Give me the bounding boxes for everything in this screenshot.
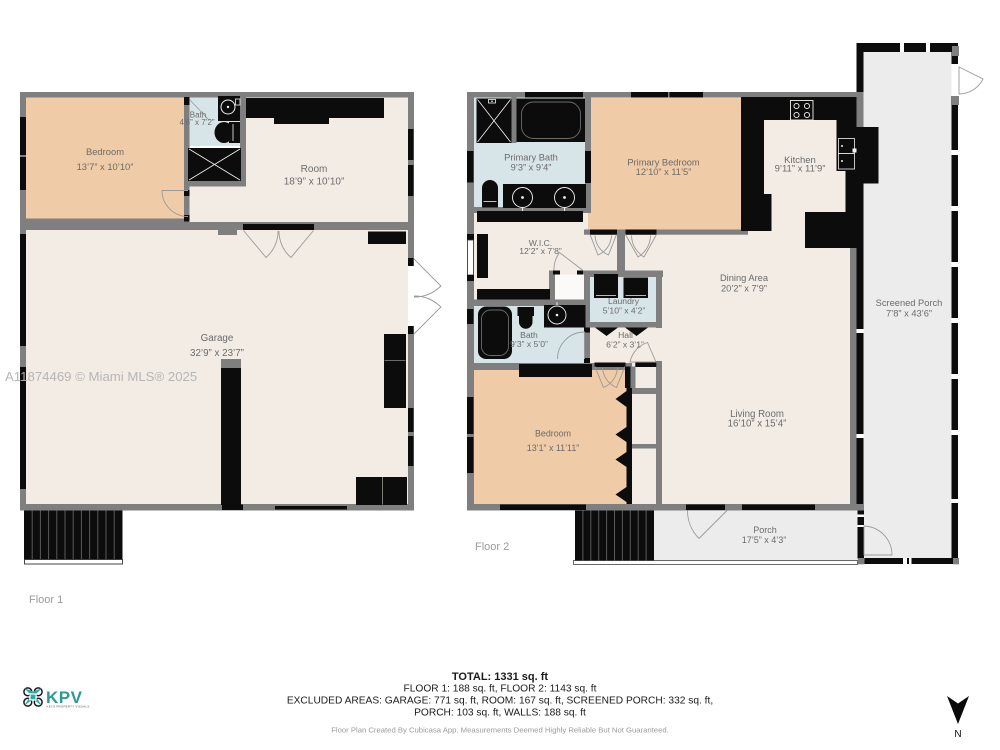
svg-text:9’3” x 9’4”: 9’3” x 9’4” bbox=[511, 163, 552, 173]
svg-text:Bedroom: Bedroom bbox=[535, 429, 571, 439]
svg-text:Floor Plan Created By Cubicasa: Floor Plan Created By Cubicasa App. Meas… bbox=[331, 726, 669, 735]
svg-text:13’1” x 11’11”: 13’1” x 11’11” bbox=[527, 443, 579, 453]
svg-text:Primary Bedroom: Primary Bedroom bbox=[627, 158, 700, 168]
svg-text:Primary Bath: Primary Bath bbox=[504, 153, 558, 163]
svg-text:20’2” x 7’9”: 20’2” x 7’9” bbox=[721, 284, 767, 294]
svg-text:A11874469 © Miami MLS® 2025: A11874469 © Miami MLS® 2025 bbox=[5, 369, 197, 384]
svg-text:7’8” x 43’6”: 7’8” x 43’6” bbox=[886, 309, 932, 319]
svg-text:17’5” x 4’3”: 17’5” x 4’3” bbox=[742, 535, 787, 545]
svg-text:Garage: Garage bbox=[201, 333, 234, 344]
svg-text:EXCLUDED AREAS: GARAGE: 771 sq: EXCLUDED AREAS: GARAGE: 771 sq. ft, ROOM… bbox=[287, 696, 713, 707]
svg-text:18’9” x 10’10”: 18’9” x 10’10” bbox=[284, 177, 345, 188]
svg-text:Floor 1: Floor 1 bbox=[29, 594, 63, 606]
svg-text:KEYS PROPERTY VISUALS: KEYS PROPERTY VISUALS bbox=[47, 705, 90, 709]
svg-text:12’2” x 7’8”: 12’2” x 7’8” bbox=[519, 246, 562, 256]
svg-text:Laundry: Laundry bbox=[608, 296, 640, 306]
svg-text:Dining Area: Dining Area bbox=[720, 273, 769, 283]
svg-text:32’9” x 23’7”: 32’9” x 23’7” bbox=[190, 348, 244, 359]
svg-text:6’2” x 3’1”: 6’2” x 3’1” bbox=[606, 340, 644, 350]
svg-text:9’11” x 11’9”: 9’11” x 11’9” bbox=[775, 164, 826, 175]
svg-text:4’6” x 7’2”: 4’6” x 7’2” bbox=[179, 118, 214, 127]
svg-text:N: N bbox=[954, 729, 961, 740]
svg-text:Room: Room bbox=[301, 164, 328, 175]
svg-text:13’7” x 10’10”: 13’7” x 10’10” bbox=[77, 161, 134, 172]
svg-text:Porch: Porch bbox=[753, 525, 777, 535]
svg-text:9’3” x 5’0”: 9’3” x 5’0” bbox=[510, 339, 548, 349]
svg-text:TOTAL: 1331 sq. ft: TOTAL: 1331 sq. ft bbox=[452, 671, 549, 683]
svg-text:16’10” x 15’4”: 16’10” x 15’4” bbox=[728, 419, 787, 430]
svg-text:FLOOR 1: 188 sq. ft, FLOOR 2:: FLOOR 1: 188 sq. ft, FLOOR 2: 1143 sq. f… bbox=[404, 684, 597, 695]
svg-text:5’10” x 4’2”: 5’10” x 4’2” bbox=[603, 306, 646, 316]
svg-text:Hall: Hall bbox=[618, 330, 633, 340]
svg-text:PORCH: 103 sq. ft, WALLS: 188: PORCH: 103 sq. ft, WALLS: 188 sq. ft bbox=[414, 708, 586, 719]
svg-text:Floor 2: Floor 2 bbox=[475, 541, 509, 553]
svg-text:Bedroom: Bedroom bbox=[86, 146, 124, 157]
svg-text:Screened Porch: Screened Porch bbox=[876, 298, 943, 308]
svg-text:12’10” x 11’5”: 12’10” x 11’5” bbox=[636, 167, 692, 177]
